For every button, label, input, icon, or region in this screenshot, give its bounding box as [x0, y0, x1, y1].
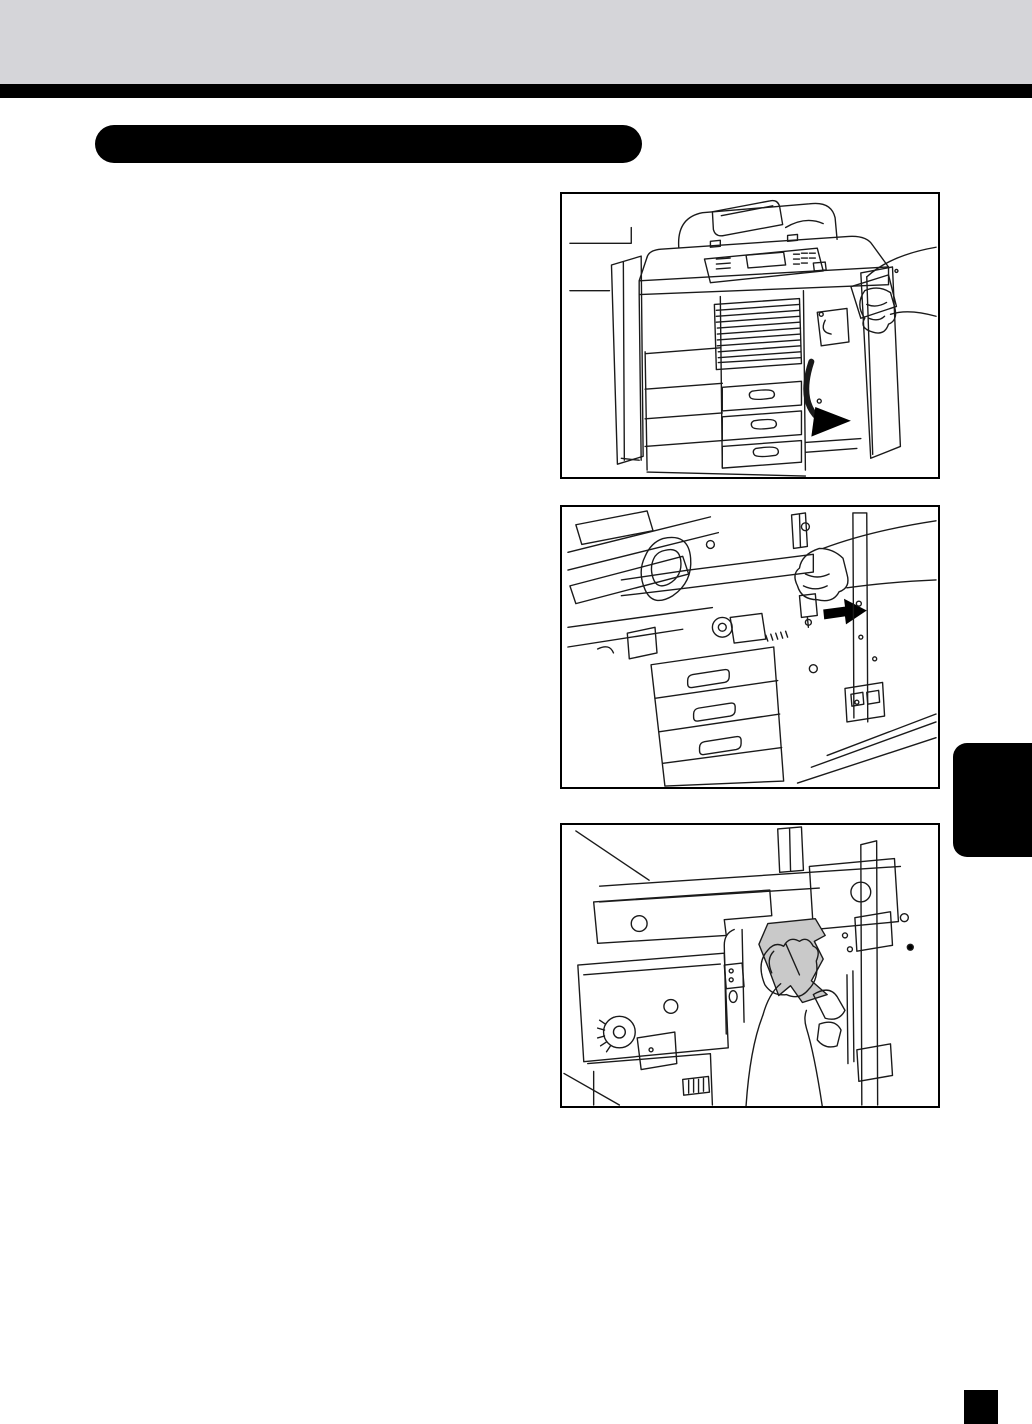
page-header-band: [0, 0, 1032, 84]
upper-frame: [576, 827, 901, 943]
hand-arm: [795, 521, 936, 601]
right-frame-latches: [813, 841, 913, 1105]
manual-page: [0, 0, 1032, 1424]
figure-step-2-slide-release-lever: [560, 505, 940, 789]
left-assembly: [564, 953, 728, 1105]
copier-line-art: [562, 194, 938, 477]
figure-step-1-open-side-cover: [560, 192, 940, 479]
right-arrow-icon: [823, 599, 867, 625]
section-title-pill: [95, 125, 642, 163]
right-post-and-floor: [797, 513, 936, 783]
background-wall: [570, 228, 643, 465]
page-number-block: [964, 1390, 998, 1424]
figure-step-3-remove-jammed-paper: [560, 823, 940, 1108]
header-rule: [0, 84, 1032, 98]
feed-area-line-art: [562, 825, 938, 1106]
interior-frame: [568, 511, 809, 659]
drawer-stack: [651, 647, 817, 786]
guide-rail: [621, 554, 813, 643]
chapter-tab: [953, 743, 1032, 857]
swing-arrow-icon: [806, 362, 851, 437]
side-cover-open: [817, 267, 900, 458]
cover-interior-line-art: [562, 507, 938, 787]
